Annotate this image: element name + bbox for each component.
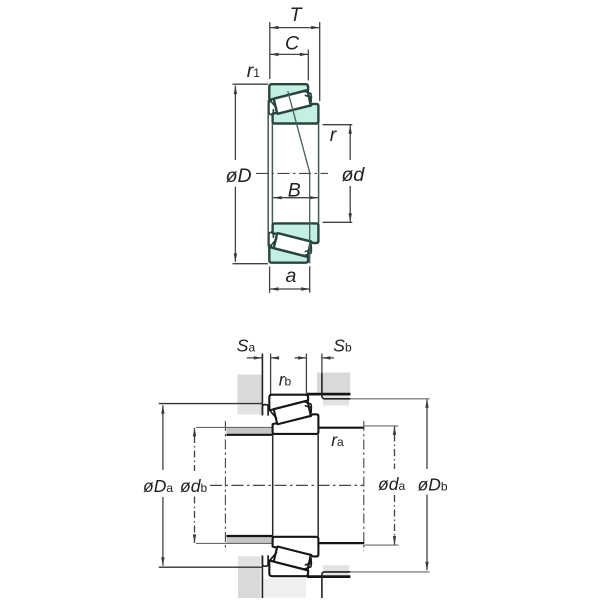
svg-text:T: T [290,4,304,26]
svg-text:ød: ød [342,164,366,186]
svg-text:øda: øda [378,474,405,494]
svg-text:C: C [285,32,300,54]
svg-text:a: a [286,265,297,287]
svg-text:øDa: øDa [143,476,173,496]
svg-text:r1: r1 [247,60,260,82]
svg-text:Sb: Sb [333,335,352,355]
svg-text:Sa: Sa [237,335,256,355]
svg-text:r: r [330,124,338,146]
svg-text:B: B [288,179,301,201]
svg-text:øDb: øDb [418,474,448,494]
svg-text:ra: ra [331,430,344,450]
svg-text:ødb: ødb [180,476,207,496]
svg-text:rb: rb [279,369,292,389]
svg-text:øD: øD [226,165,252,187]
